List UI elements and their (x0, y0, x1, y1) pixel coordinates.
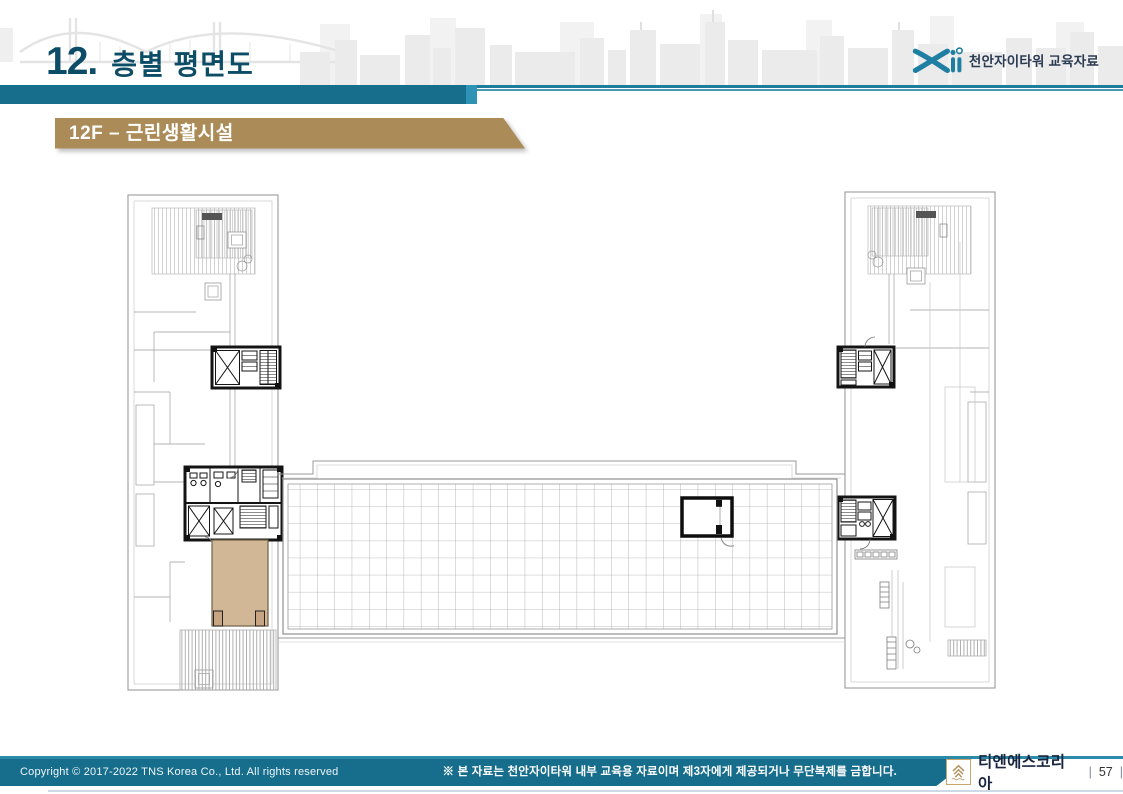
brand-area: 천안자이타워 교육자료 (911, 44, 1099, 76)
slide: 12. 층별 평면도 천안자이타워 교육자료 12F – 근린생활시설 (0, 0, 1123, 794)
elevator-core-upper-right (838, 337, 894, 387)
floor-section-label-wrap: 12F – 근린생활시설 (55, 118, 525, 149)
right-tower-wing (838, 192, 995, 688)
page-indicator: | 57 | (1089, 765, 1123, 779)
header-rule-bar (0, 85, 466, 104)
xi-logo-icon (911, 44, 963, 76)
copyright-text: Copyright © 2017-2022 TNS Korea Co., Ltd… (20, 759, 338, 787)
floor-section-label: 12F – 근린생활시설 (55, 118, 525, 149)
page-separator-left: | (1089, 765, 1092, 779)
highlighted-room (205, 537, 268, 626)
floor-plan-drawing (110, 182, 1010, 702)
center-roof-grid (278, 461, 845, 642)
footer-brand-area: 티엔에스코리아 | 57 | (946, 757, 1123, 787)
page-number: 57 (1099, 765, 1113, 779)
section-title: 층별 평면도 (111, 43, 254, 83)
section-number: 12. (46, 40, 97, 84)
machine-room-fixtures (855, 550, 986, 669)
tns-mountain-emblem-icon (946, 759, 971, 785)
floor-section-label-text: 12F – 근린생활시설 (69, 123, 234, 144)
elevator-core-upper-left (212, 347, 280, 388)
header-rule-accent (466, 85, 477, 104)
header-rule-thin-2 (468, 89, 1123, 91)
bottom-edge-strip (48, 790, 1123, 792)
notice-text: ※ 본 자료는 천안자이타워 내부 교육용 자료이며 제3자에게 제공되거나 무… (443, 759, 898, 787)
company-name: 티엔에스코리아 (978, 750, 1076, 794)
stair-hatch-left (180, 630, 276, 690)
elevator-core-lower-left (185, 467, 282, 551)
page-title: 12. 층별 평면도 (46, 40, 254, 84)
left-tower-wing (128, 195, 282, 690)
elevator-core-lower-right (838, 497, 895, 549)
brand-text: 천안자이타워 교육자료 (969, 50, 1099, 70)
